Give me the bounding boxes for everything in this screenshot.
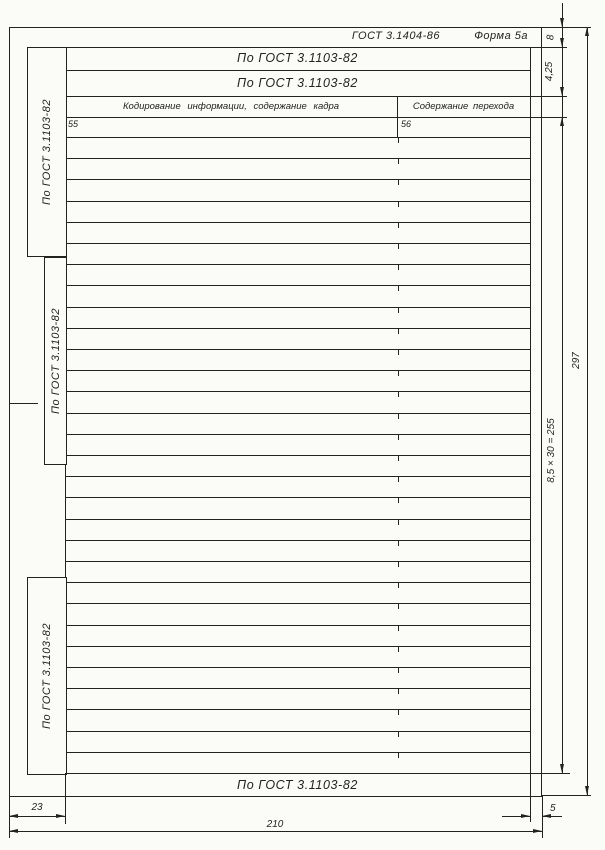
footer-label: По ГОСТ 3.1103-82 (65, 778, 530, 792)
content-row-line (65, 582, 530, 583)
header-line-4 (65, 117, 530, 118)
dim-arrow (560, 18, 564, 27)
dim-arrow (542, 814, 551, 818)
column-divider-tick (398, 158, 399, 164)
dim-arrow (585, 786, 589, 795)
dim-left-margin: 23 (15, 802, 59, 813)
content-row-line (65, 391, 530, 392)
column-divider-tick (398, 603, 399, 609)
header-line-3 (65, 96, 530, 97)
ext-top (542, 27, 591, 28)
content-row-line (65, 328, 530, 329)
content-row-line (65, 752, 530, 753)
column-divider-tick (398, 222, 399, 228)
content-row-line (65, 561, 530, 562)
dim-line-page-height (587, 27, 588, 795)
column-divider-tick (398, 540, 399, 546)
content-row-line (65, 667, 530, 668)
column-divider-tick (398, 752, 399, 758)
column-divider-tick (398, 561, 399, 567)
column-divider-tick (398, 434, 399, 440)
column-divider-tick (398, 370, 399, 376)
side-box-2: По ГОСТ 3.1103-82 (44, 257, 67, 465)
dim-page-width: 210 (200, 819, 350, 830)
column-1-title: Кодирование информации, содержание кадра (65, 101, 397, 112)
content-row-line (65, 434, 530, 435)
side-box-3-label: По ГОСТ 3.1103-82 (41, 623, 53, 729)
ext-bottom-530 (530, 795, 531, 822)
column-divider-tick (398, 285, 399, 291)
form-number-label: Форма 5а (462, 30, 528, 42)
content-row-line (65, 476, 530, 477)
column-divider-tick (398, 519, 399, 525)
dim-arrow (560, 117, 564, 126)
gost-form-drawing: ГОСТ 3.1404-86 Форма 5а По ГОСТ 3.1103-8… (0, 0, 605, 850)
column-divider-tick (398, 349, 399, 355)
dim-arrow (9, 829, 18, 833)
content-row-line (65, 540, 530, 541)
sheet-middle-mark (9, 403, 38, 404)
column-divider-tick (398, 582, 399, 588)
column-divider-tick (398, 497, 399, 503)
column-divider-tick (398, 137, 399, 143)
frame-right-edge (530, 47, 531, 822)
header-row-2: По ГОСТ 3.1103-82 (65, 76, 530, 90)
dim-arrow (9, 814, 18, 818)
content-row-line (65, 243, 530, 244)
content-row-line (65, 497, 530, 498)
column-2-number: 56 (401, 119, 411, 129)
content-row-line (65, 455, 530, 456)
dim-arrow (585, 27, 589, 36)
column-divider-tick (398, 476, 399, 482)
header-line-2 (65, 70, 530, 71)
dim-arrow (560, 764, 564, 773)
content-row-line (65, 519, 530, 520)
column-divider-tick (398, 243, 399, 249)
column-divider-tick (398, 731, 399, 737)
side-box-2-label: По ГОСТ 3.1103-82 (50, 308, 62, 414)
content-row-line (65, 731, 530, 732)
column-divider-tick (398, 391, 399, 397)
content-row-line (65, 370, 530, 371)
column-divider-tick (398, 709, 399, 715)
content-row-line (65, 264, 530, 265)
side-box-3: По ГОСТ 3.1103-82 (27, 577, 67, 775)
column-divider-tick (398, 413, 399, 419)
column-divider-tick (398, 201, 399, 207)
dim-arrow (560, 38, 564, 47)
column-2-title: Содержание перехода (397, 101, 530, 112)
dim-top-margin: 8 (546, 34, 557, 40)
footer-strip-top-line (65, 773, 530, 774)
column-divider-tick (398, 667, 399, 673)
column-divider-tick (398, 328, 399, 334)
dim-arrow (56, 814, 65, 818)
ext-rows-bottom (530, 773, 570, 774)
standard-reference: ГОСТ 3.1404-86 (230, 30, 440, 42)
column-divider-tick (398, 625, 399, 631)
dim-arrow (521, 814, 530, 818)
content-row-line (65, 158, 530, 159)
frame-top-line (65, 47, 530, 48)
content-row-line (65, 307, 530, 308)
dim-header-height: 4,25 (545, 61, 556, 80)
column-divider-tick (398, 179, 399, 185)
header-row-1: По ГОСТ 3.1103-82 (65, 51, 530, 65)
dim-arrow (560, 87, 564, 96)
dim-page-height: 297 (571, 352, 582, 369)
column-divider-tick (398, 646, 399, 652)
dim-right-margin: 5 (550, 803, 556, 814)
content-row-line (65, 646, 530, 647)
content-row-line (65, 413, 530, 414)
column-divider-tick (398, 455, 399, 461)
side-box-1: По ГОСТ 3.1103-82 (27, 47, 67, 257)
side-box-1-label: По ГОСТ 3.1103-82 (41, 99, 53, 205)
column-divider-tick (398, 688, 399, 694)
content-row-line (65, 222, 530, 223)
content-row-line (65, 625, 530, 626)
dim-arrow (533, 829, 542, 833)
content-row-line (65, 349, 530, 350)
ext-bottom-65 (65, 773, 66, 824)
content-row-line (65, 179, 530, 180)
content-row-line (65, 688, 530, 689)
dim-line-page-width (9, 831, 542, 832)
column-divider-tick (398, 307, 399, 313)
column-divider-tick (398, 264, 399, 270)
dim-rows-total: 8,5 × 30 = 255 (546, 418, 557, 483)
ext-sheet-bottom (542, 795, 591, 796)
column-1-number: 55 (68, 119, 78, 129)
content-row-line (65, 603, 530, 604)
content-row-line (65, 201, 530, 202)
content-row-line (65, 285, 530, 286)
content-row-line (65, 709, 530, 710)
content-row-line (65, 137, 530, 138)
